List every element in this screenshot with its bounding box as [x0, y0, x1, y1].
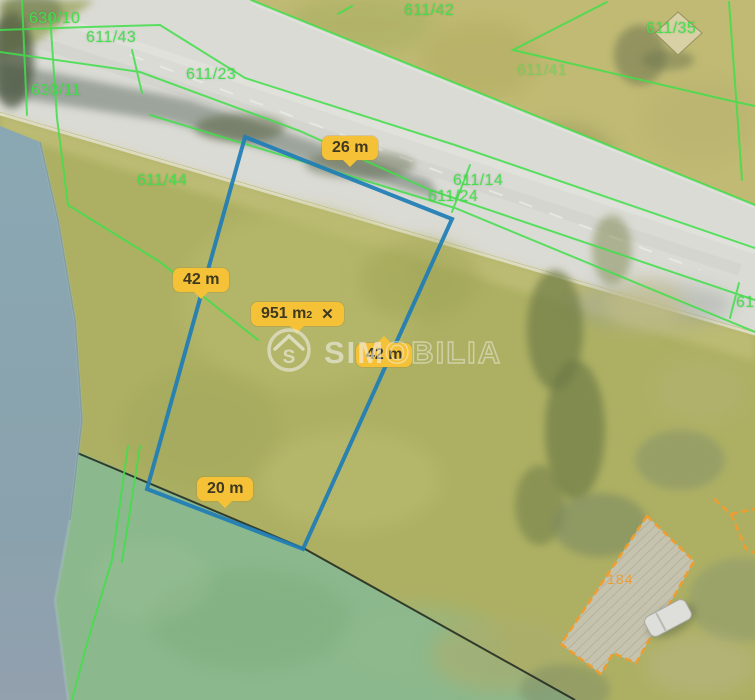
- parcel-label: 611/41: [517, 62, 567, 80]
- parcel-label: 611/44: [137, 172, 187, 190]
- close-icon[interactable]: ✕: [321, 305, 334, 323]
- parcel-label: 611/42: [404, 2, 454, 20]
- parcel-label: 630/11: [31, 82, 81, 100]
- distance-label: 20 m: [197, 477, 253, 501]
- parcel-label: 630/10: [29, 10, 80, 28]
- area-unit-sup: 2: [306, 310, 312, 321]
- area-value: 951 m: [261, 305, 306, 323]
- distance-label: 42 m: [173, 268, 229, 292]
- parcel-label: 611/23: [186, 66, 236, 84]
- parcel-label: 61: [736, 294, 755, 312]
- area-label: 951 m2 ✕: [251, 302, 344, 326]
- distance-label: 42 m: [356, 343, 412, 367]
- parcel-label: 611/43: [86, 29, 136, 47]
- parcel-label: 611/24: [428, 188, 478, 206]
- map-viewport[interactable]: 630/10611/43611/23630/11611/44611/42611/…: [0, 0, 755, 700]
- distance-label: 26 m: [322, 136, 378, 160]
- building-number-label: 184: [607, 571, 633, 587]
- parcel-label: 611/35: [646, 20, 696, 38]
